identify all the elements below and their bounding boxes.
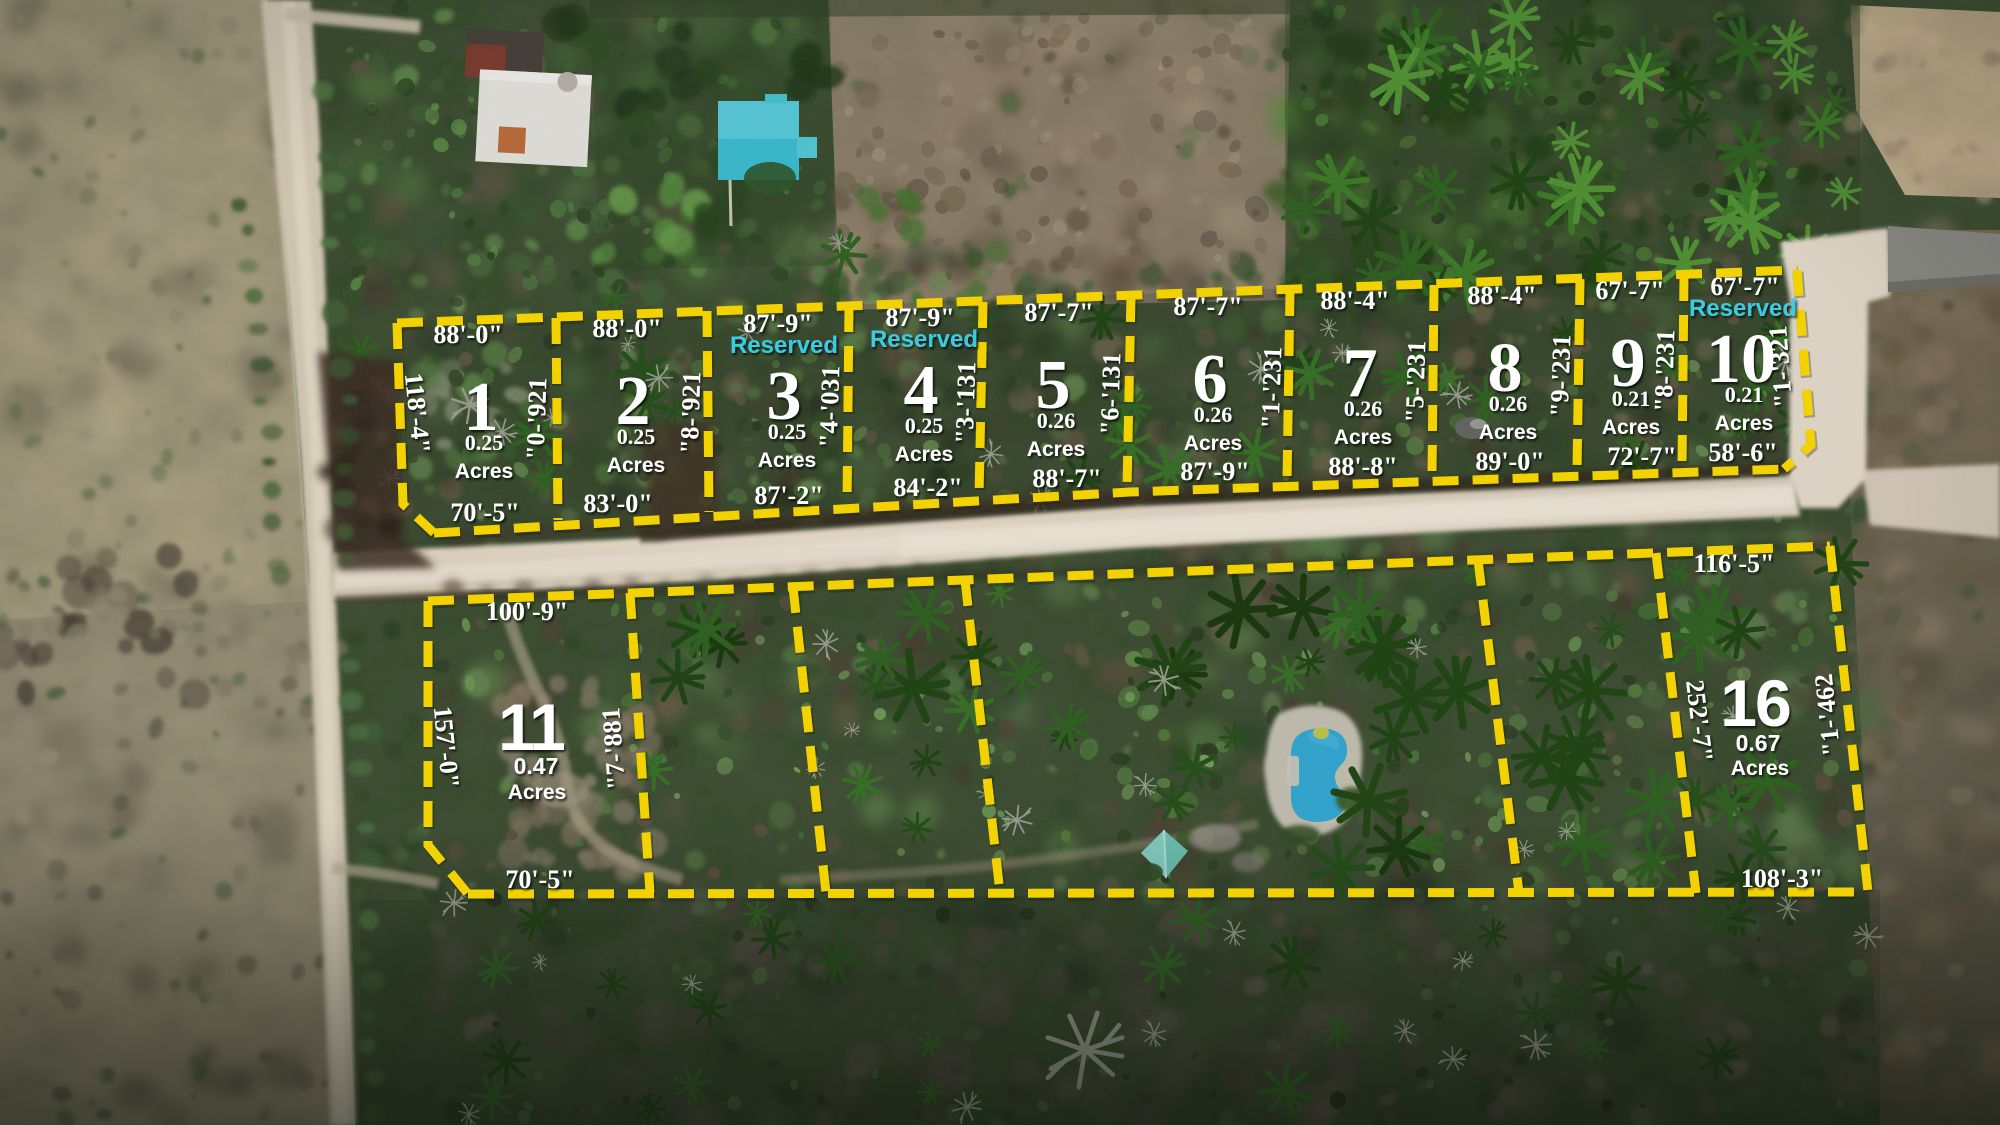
svg-text:"6-'131: "6-'131 bbox=[1095, 352, 1127, 435]
svg-text:0.26: 0.26 bbox=[1489, 391, 1528, 416]
svg-text:70'-5": 70'-5" bbox=[505, 865, 574, 894]
svg-text:"0-'921: "0-'921 bbox=[521, 377, 553, 460]
svg-text:87'-2": 87'-2" bbox=[754, 481, 823, 510]
svg-text:"1-'321: "1-'321 bbox=[1763, 325, 1798, 409]
svg-text:87'-7": 87'-7" bbox=[1024, 298, 1093, 327]
svg-text:"9-'231: "9-'231 bbox=[1545, 334, 1577, 417]
svg-text:Reserved: Reserved bbox=[730, 332, 838, 359]
svg-text:100'-9": 100'-9" bbox=[486, 597, 568, 626]
svg-text:88'-7": 88'-7" bbox=[1032, 464, 1101, 493]
svg-text:0.26: 0.26 bbox=[1194, 402, 1233, 427]
svg-text:Acres: Acres bbox=[1027, 438, 1085, 461]
svg-text:88'-0": 88'-0" bbox=[433, 320, 502, 349]
svg-text:70'-5": 70'-5" bbox=[450, 498, 519, 527]
svg-text:"4-'031: "4-'031 bbox=[814, 365, 846, 448]
svg-text:58'-6": 58'-6" bbox=[1708, 438, 1777, 467]
svg-text:Acres: Acres bbox=[1715, 412, 1773, 435]
svg-text:83'-0": 83'-0" bbox=[583, 489, 652, 518]
svg-text:Acres: Acres bbox=[607, 454, 665, 477]
svg-text:108'-3": 108'-3" bbox=[1741, 864, 1823, 893]
svg-text:0.21: 0.21 bbox=[1725, 382, 1764, 407]
svg-text:Reserved: Reserved bbox=[1689, 295, 1797, 322]
svg-text:0.21: 0.21 bbox=[1612, 386, 1651, 411]
svg-text:0.25: 0.25 bbox=[768, 419, 807, 444]
svg-text:"7-'881: "7-'881 bbox=[596, 707, 631, 791]
svg-text:0.25: 0.25 bbox=[617, 424, 656, 449]
svg-text:116'-5": 116'-5" bbox=[1694, 549, 1775, 578]
svg-text:72'-7": 72'-7" bbox=[1607, 442, 1676, 471]
svg-text:67'-7": 67'-7" bbox=[1595, 276, 1664, 305]
svg-text:16: 16 bbox=[1720, 666, 1790, 740]
svg-text:Acres: Acres bbox=[1602, 416, 1660, 439]
svg-text:0.25: 0.25 bbox=[905, 413, 944, 438]
svg-text:88'-8": 88'-8" bbox=[1328, 452, 1397, 481]
svg-text:"5-'231: "5-'231 bbox=[1400, 340, 1432, 423]
svg-text:Acres: Acres bbox=[455, 460, 513, 483]
svg-text:88'-0": 88'-0" bbox=[592, 314, 661, 343]
svg-text:Acres: Acres bbox=[1334, 426, 1392, 449]
svg-text:Acres: Acres bbox=[508, 781, 566, 804]
svg-text:Acres: Acres bbox=[1731, 757, 1789, 780]
svg-text:88'-4": 88'-4" bbox=[1320, 286, 1389, 315]
svg-text:87'-7": 87'-7" bbox=[1173, 292, 1242, 321]
svg-text:88'-4": 88'-4" bbox=[1467, 281, 1536, 310]
svg-text:0.26: 0.26 bbox=[1037, 408, 1076, 433]
svg-text:Acres: Acres bbox=[1479, 421, 1537, 444]
svg-text:89'-0": 89'-0" bbox=[1475, 447, 1544, 476]
svg-text:Reserved: Reserved bbox=[870, 326, 978, 353]
svg-text:Acres: Acres bbox=[758, 449, 816, 472]
svg-text:Acres: Acres bbox=[895, 443, 953, 466]
svg-text:"1-'231: "1-'231 bbox=[1256, 346, 1288, 429]
svg-text:"3-'131: "3-'131 bbox=[950, 361, 982, 444]
svg-text:84'-2": 84'-2" bbox=[893, 473, 962, 502]
svg-text:87'-9": 87'-9" bbox=[1180, 457, 1249, 486]
svg-text:"8-'231: "8-'231 bbox=[1649, 329, 1681, 412]
svg-text:"8-'921: "8-'921 bbox=[675, 371, 707, 454]
svg-text:Acres: Acres bbox=[1184, 432, 1242, 455]
svg-text:0.25: 0.25 bbox=[465, 430, 504, 455]
svg-text:0.47: 0.47 bbox=[514, 753, 559, 779]
svg-text:0.26: 0.26 bbox=[1344, 396, 1383, 421]
svg-text:0.67: 0.67 bbox=[1736, 730, 1781, 756]
